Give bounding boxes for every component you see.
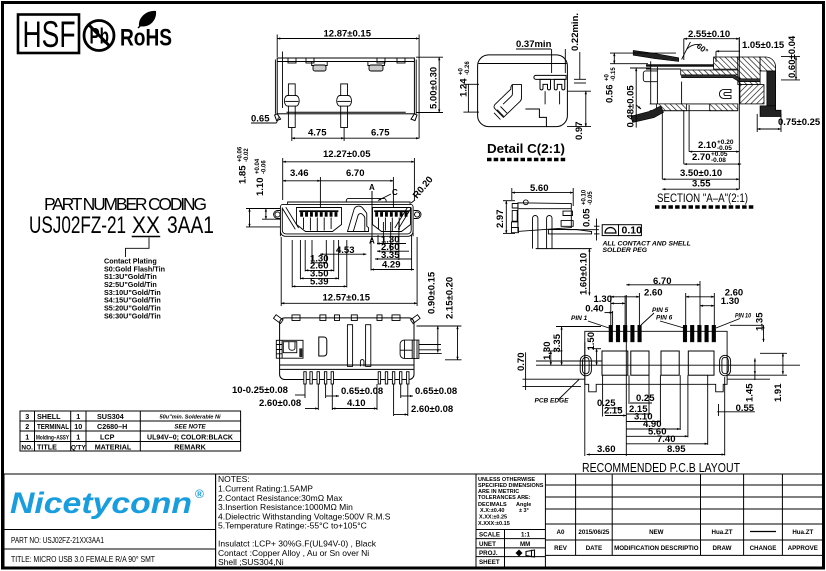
- svg-text:CHANGE: CHANGE: [750, 545, 777, 552]
- svg-text:0.65±0.08: 0.65±0.08: [415, 386, 457, 397]
- svg-text:-0.26: -0.26: [465, 61, 471, 75]
- svg-text:8.95: 8.95: [667, 444, 686, 455]
- svg-text:3AA1: 3AA1: [167, 212, 214, 239]
- svg-text:UNET: UNET: [479, 541, 496, 548]
- svg-text:3: 3: [25, 412, 29, 421]
- svg-text:1.24: 1.24: [459, 78, 470, 97]
- svg-text:0.40: 0.40: [585, 304, 604, 315]
- svg-text:10-0.25±0.08: 10-0.25±0.08: [232, 385, 288, 396]
- svg-text:X.X:±0.40: X.X:±0.40: [480, 508, 504, 514]
- svg-text:0.56: 0.56: [605, 85, 616, 104]
- svg-text:SHELL: SHELL: [37, 412, 61, 421]
- svg-text:REV: REV: [554, 545, 568, 552]
- svg-text:Detail C(2:1): Detail C(2:1): [487, 141, 565, 156]
- svg-text:MM: MM: [520, 541, 530, 548]
- svg-text:TOLERANCES ARE:: TOLERANCES ARE:: [478, 495, 531, 501]
- svg-text:-0.05: -0.05: [588, 191, 594, 205]
- svg-text:1: 1: [76, 412, 80, 421]
- svg-text:SOLDER PEG: SOLDER PEG: [603, 247, 648, 254]
- svg-text:A0: A0: [557, 529, 565, 536]
- svg-text:0.75±0.25: 0.75±0.25: [778, 117, 821, 128]
- svg-text:TITLE: MICRO USB 3.0 FEMALE R/: TITLE: MICRO USB 3.0 FEMALE R/A 90° SMT: [11, 554, 155, 564]
- svg-text:1.05±0.15: 1.05±0.15: [742, 40, 785, 51]
- svg-text:SECTION "A–A"(2:1): SECTION "A–A"(2:1): [657, 193, 748, 205]
- svg-text:Hua.ZT: Hua.ZT: [792, 529, 813, 536]
- svg-text:1.60±0.10: 1.60±0.10: [579, 253, 590, 295]
- svg-text:1:1: 1:1: [521, 532, 531, 539]
- svg-text:0.25: 0.25: [636, 393, 655, 404]
- svg-text:1.85: 1.85: [238, 165, 249, 184]
- svg-text:2.60±0.08: 2.60±0.08: [411, 404, 453, 415]
- svg-text:S6:30U"Gold/Tin: S6:30U"Gold/Tin: [104, 311, 161, 320]
- svg-text:2.60±0.08: 2.60±0.08: [259, 398, 301, 409]
- svg-text:REMARK: REMARK: [174, 443, 206, 452]
- svg-text:PIN 5: PIN 5: [652, 307, 669, 314]
- svg-text:0.10: 0.10: [622, 225, 643, 237]
- svg-text:1.Current Rating:1.5AMP: 1.Current Rating:1.5AMP: [218, 484, 313, 494]
- svg-text:+0.10: +0.10: [582, 189, 588, 205]
- svg-text:6.70: 6.70: [653, 276, 672, 287]
- svg-text:2.10: 2.10: [698, 140, 717, 151]
- svg-text:PROJ.: PROJ.: [479, 550, 498, 557]
- svg-text:6.75: 6.75: [371, 128, 390, 139]
- svg-text:1.45: 1.45: [745, 383, 756, 402]
- svg-text:0.90±0.15: 0.90±0.15: [427, 271, 438, 314]
- svg-text:SEE NOTE: SEE NOTE: [174, 424, 206, 431]
- svg-text:SHEET: SHEET: [479, 559, 500, 566]
- svg-text:A: A: [369, 183, 375, 192]
- svg-text:3.60: 3.60: [597, 444, 616, 455]
- svg-text:-0.15: -0.15: [611, 67, 617, 81]
- svg-text:10: 10: [74, 422, 82, 431]
- svg-text:PCB EDGE: PCB EDGE: [535, 398, 570, 405]
- svg-text:1: 1: [25, 433, 29, 442]
- svg-text:4.10: 4.10: [347, 398, 366, 409]
- svg-text:4.75: 4.75: [308, 128, 327, 139]
- svg-text:0.48±0.05: 0.48±0.05: [626, 85, 637, 128]
- svg-text:DATE: DATE: [586, 545, 602, 552]
- svg-text:XX: XX: [132, 212, 160, 239]
- svg-text:+0: +0: [605, 73, 611, 81]
- svg-text:2015/06/25: 2015/06/25: [578, 529, 610, 536]
- svg-text:LCP: LCP: [100, 433, 115, 442]
- svg-text:4.29: 4.29: [382, 260, 401, 271]
- svg-text:5.Temperature Ratinge:-55°C to: 5.Temperature Ratinge:-55°C to+105°C: [218, 521, 367, 531]
- svg-text:3.Insertion Resistance:1000MΩ: 3.Insertion Resistance:1000MΩ Min: [218, 502, 353, 512]
- svg-text:PIN 10: PIN 10: [735, 313, 751, 320]
- svg-text:UL94V–0; COLOR:BLACK: UL94V–0; COLOR:BLACK: [147, 435, 233, 442]
- svg-text:6.70: 6.70: [346, 168, 365, 179]
- svg-text:Shell ;SUS304,Ni: Shell ;SUS304,Ni: [218, 557, 284, 567]
- svg-text:C2680–H: C2680–H: [97, 422, 127, 431]
- svg-text:2.60: 2.60: [644, 288, 663, 299]
- svg-text:PIN 1: PIN 1: [571, 315, 588, 322]
- svg-text:2: 2: [25, 422, 29, 431]
- svg-text:Molding–ASSY: Molding–ASSY: [36, 436, 69, 442]
- svg-text:2.97: 2.97: [495, 210, 506, 229]
- svg-text:-0.08: -0.08: [711, 157, 726, 164]
- svg-text:RoHS: RoHS: [120, 25, 172, 52]
- svg-text:0.22min.: 0.22min.: [570, 13, 581, 51]
- svg-text:MATERIAL: MATERIAL: [95, 443, 132, 452]
- svg-text:2.15±0.20: 2.15±0.20: [445, 277, 456, 319]
- svg-text:2.70: 2.70: [692, 152, 711, 163]
- svg-text:®: ®: [195, 487, 204, 501]
- svg-text:3.46: 3.46: [290, 168, 309, 179]
- svg-text:NO.: NO.: [21, 445, 33, 452]
- svg-text:12.27±0.05: 12.27±0.05: [323, 149, 371, 160]
- svg-text:Q'TY: Q'TY: [71, 445, 87, 452]
- svg-text:12.87±0.15: 12.87±0.15: [324, 29, 372, 40]
- svg-text:+0.04: +0.04: [255, 158, 261, 174]
- svg-text:NEW: NEW: [649, 529, 664, 536]
- svg-text:12.57±0.15: 12.57±0.15: [323, 293, 371, 304]
- svg-text:0.05: 0.05: [582, 208, 593, 227]
- svg-text:MODIFICATION DESCRIPTIO: MODIFICATION DESCRIPTIO: [614, 545, 699, 552]
- svg-text:2.60: 2.60: [725, 288, 744, 299]
- svg-text:TERMINAL: TERMINAL: [37, 422, 70, 431]
- svg-text:-0.06: -0.06: [262, 160, 268, 174]
- svg-text:3.55: 3.55: [692, 179, 711, 190]
- svg-text:APPROVE: APPROVE: [788, 545, 818, 552]
- svg-text:RECOMMENDED P.C.B LAYOUT: RECOMMENDED P.C.B LAYOUT: [582, 460, 740, 475]
- svg-text:1.91: 1.91: [773, 383, 784, 402]
- svg-text:NOTES:: NOTES:: [218, 474, 250, 484]
- svg-text:X.XXX:±0.15: X.XXX:±0.15: [478, 521, 510, 527]
- svg-text:USJ02FZ-21: USJ02FZ-21: [29, 212, 126, 239]
- svg-text:+0.06: +0.06: [238, 146, 244, 162]
- svg-text:Hua.ZT: Hua.ZT: [712, 529, 733, 536]
- svg-text:HSF: HSF: [23, 14, 76, 55]
- svg-text:1: 1: [76, 433, 80, 442]
- svg-text:PART NO: USJ02FZ-21XX3AA1: PART NO: USJ02FZ-21XX3AA1: [11, 535, 104, 545]
- svg-text:1.50: 1.50: [586, 332, 597, 351]
- svg-text:0.37min: 0.37min: [516, 39, 552, 50]
- svg-text:SUS304: SUS304: [97, 412, 124, 421]
- svg-text:1.10: 1.10: [255, 178, 266, 197]
- svg-text:0.55: 0.55: [736, 403, 755, 414]
- svg-text:DRAW: DRAW: [713, 545, 732, 552]
- svg-text:Nicetyconn: Nicetyconn: [10, 487, 192, 520]
- svg-text:0.97: 0.97: [574, 122, 585, 141]
- svg-text:3.50±0.10: 3.50±0.10: [680, 168, 722, 179]
- svg-text:5.00±0.30: 5.00±0.30: [429, 67, 440, 109]
- svg-text:PART NUMBER CODING: PART NUMBER CODING: [44, 194, 207, 214]
- svg-text:Insulatct :LCP+ 30%G.F(UL94V-0: Insulatct :LCP+ 30%G.F(UL94V-0) , Black: [218, 539, 377, 549]
- svg-text:+0: +0: [459, 67, 465, 75]
- svg-text:TITLE: TITLE: [37, 443, 57, 452]
- svg-text:C: C: [392, 188, 398, 197]
- svg-text:-0.02: -0.02: [244, 148, 250, 162]
- svg-text:SCALE: SCALE: [479, 532, 500, 539]
- svg-text:2.15: 2.15: [604, 406, 623, 417]
- svg-text:PIN 6: PIN 6: [656, 315, 673, 322]
- svg-text:± 3°: ± 3°: [519, 508, 529, 514]
- svg-text:50u"min. Solderable Ni: 50u"min. Solderable Ni: [159, 415, 221, 421]
- svg-text:A: A: [369, 237, 375, 246]
- svg-text:X.XX:±0.25: X.XX:±0.25: [479, 515, 507, 521]
